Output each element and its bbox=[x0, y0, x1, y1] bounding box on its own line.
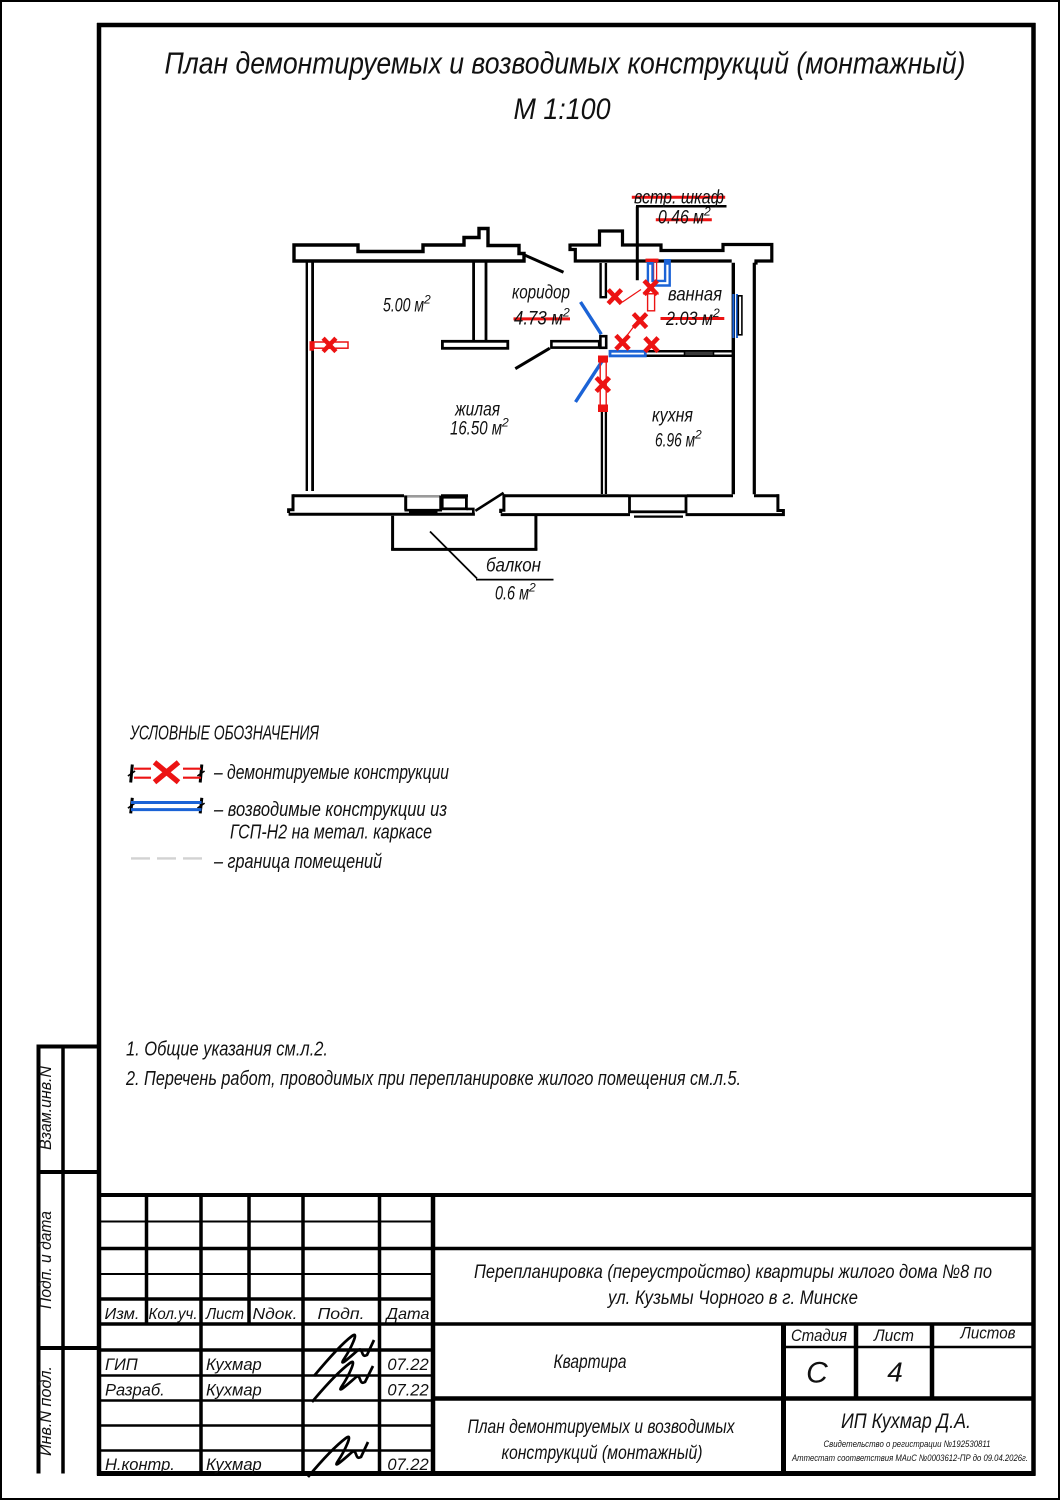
svg-text:ГИП: ГИП bbox=[105, 1356, 138, 1374]
svg-text:Н.контр.: Н.контр. bbox=[105, 1456, 175, 1474]
svg-text:Подп. и дата: Подп. и дата bbox=[37, 1211, 55, 1309]
svg-text:6.96 м2: 6.96 м2 bbox=[655, 428, 702, 452]
svg-text:– демонтируемые конструкции: – демонтируемые конструкции bbox=[213, 762, 449, 784]
svg-text:16.50 м2: 16.50 м2 bbox=[450, 416, 509, 440]
svg-text:Лист: Лист bbox=[873, 1327, 914, 1345]
svg-text:Листов: Листов bbox=[960, 1325, 1016, 1343]
svg-text:ул. Кузьмы Чорного в г. Минске: ул. Кузьмы Чорного в г. Минске bbox=[606, 1287, 858, 1309]
svg-text:С: С bbox=[806, 1357, 828, 1390]
svg-text:– возводимые конструкции из: – возводимые конструкции из bbox=[213, 799, 447, 821]
svg-text:Взам.инв.N: Взам.инв.N bbox=[37, 1066, 55, 1150]
svg-text:2.03 м2: 2.03 м2 bbox=[665, 306, 720, 330]
svg-text:Квартира: Квартира bbox=[554, 1351, 627, 1373]
svg-text:План демонтируемых и возводимы: План демонтируемых и возводимых bbox=[468, 1416, 736, 1438]
svg-text:07.22: 07.22 bbox=[387, 1382, 428, 1400]
svg-text:УСЛОВНЫЕ ОБОЗНАЧЕНИЯ: УСЛОВНЫЕ ОБОЗНАЧЕНИЯ bbox=[129, 722, 319, 745]
svg-text:– граница помещений: – граница помещений bbox=[213, 851, 382, 873]
svg-text:М 1:100: М 1:100 bbox=[514, 93, 611, 126]
svg-text:ИП Кухмар Д.А.: ИП Кухмар Д.А. bbox=[841, 1410, 971, 1433]
svg-text:Перепланировка (переустройств: Перепланировка (переустройство) квартиры… bbox=[474, 1261, 992, 1283]
svg-text:0.46 м2: 0.46 м2 bbox=[658, 205, 711, 229]
svg-text:коридор: коридор bbox=[512, 282, 570, 304]
svg-text:ванная: ванная bbox=[668, 284, 722, 306]
svg-text:Изм.: Изм. bbox=[105, 1306, 140, 1323]
svg-text:План демонтируемых и возвод: План демонтируемых и возводимых конструк… bbox=[165, 46, 966, 81]
svg-text:балкон: балкон bbox=[486, 555, 541, 577]
svg-text:конструкций (монтажный): конструкций (монтажный) bbox=[502, 1442, 703, 1464]
svg-text:ГСП-Н2 на метал. каркасе: ГСП-Н2 на метал. каркасе bbox=[230, 822, 432, 844]
svg-text:Стадия: Стадия bbox=[791, 1327, 847, 1345]
svg-text:4.73 м2: 4.73 м2 bbox=[514, 306, 570, 330]
svg-text:4: 4 bbox=[887, 1357, 903, 1388]
svg-text:2. Перечень работ, проводимых: 2. Перечень работ, проводимых при перепл… bbox=[125, 1068, 741, 1090]
svg-text:Дата: Дата bbox=[384, 1306, 429, 1323]
svg-text:1. Общие указания см.л.2.: 1. Общие указания см.л.2. bbox=[126, 1039, 328, 1061]
svg-text:Аттестат соответствия МАиС №00: Аттестат соответствия МАиС №0003612-ПР д… bbox=[791, 1453, 1028, 1464]
svg-text:Свидетельство о регистрации №1: Свидетельство о регистрации №192530811 bbox=[824, 1439, 991, 1450]
svg-text:07.22: 07.22 bbox=[387, 1356, 428, 1374]
svg-text:кухня: кухня bbox=[652, 405, 693, 427]
svg-text:Кухмар: Кухмар bbox=[206, 1382, 262, 1400]
svg-text:Лист: Лист bbox=[205, 1306, 244, 1323]
svg-text:Кол.уч.: Кол.уч. bbox=[149, 1306, 198, 1323]
svg-text:07.22: 07.22 bbox=[387, 1456, 428, 1474]
svg-text:Кухмар: Кухмар bbox=[206, 1356, 262, 1374]
svg-text:Разраб.: Разраб. bbox=[105, 1382, 165, 1400]
svg-text:Кухмар: Кухмар bbox=[206, 1456, 262, 1474]
svg-text:Подп.: Подп. bbox=[318, 1306, 365, 1323]
svg-text:5.00 м2: 5.00 м2 bbox=[383, 293, 431, 317]
svg-text:Инв.N подл.: Инв.N подл. bbox=[37, 1366, 55, 1456]
svg-text:Nдок.: Nдок. bbox=[253, 1306, 298, 1323]
